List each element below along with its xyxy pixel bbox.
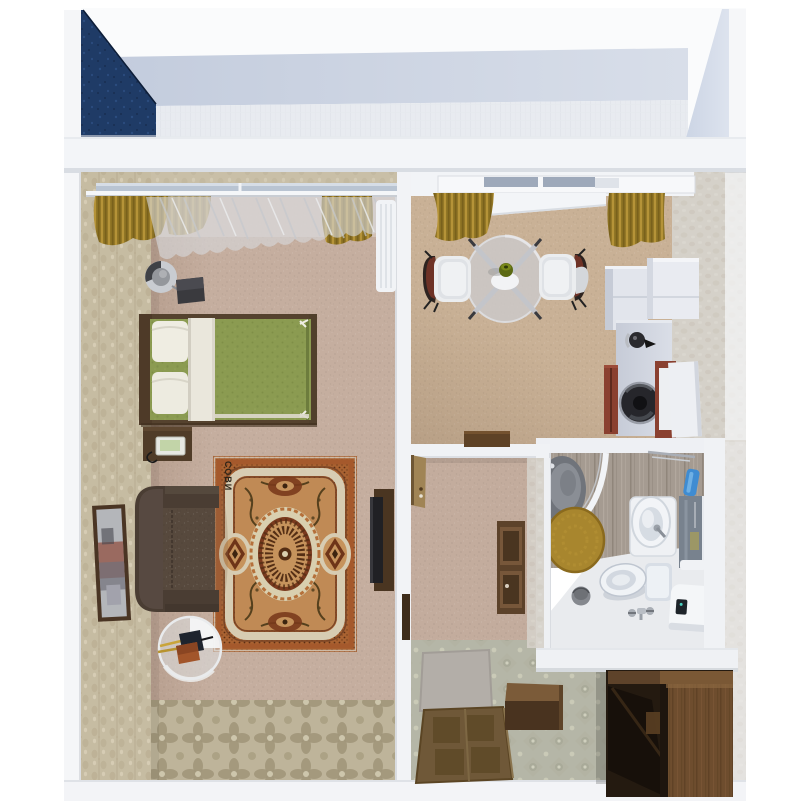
svg-text:СОВИ: СОВИ <box>223 461 233 491</box>
